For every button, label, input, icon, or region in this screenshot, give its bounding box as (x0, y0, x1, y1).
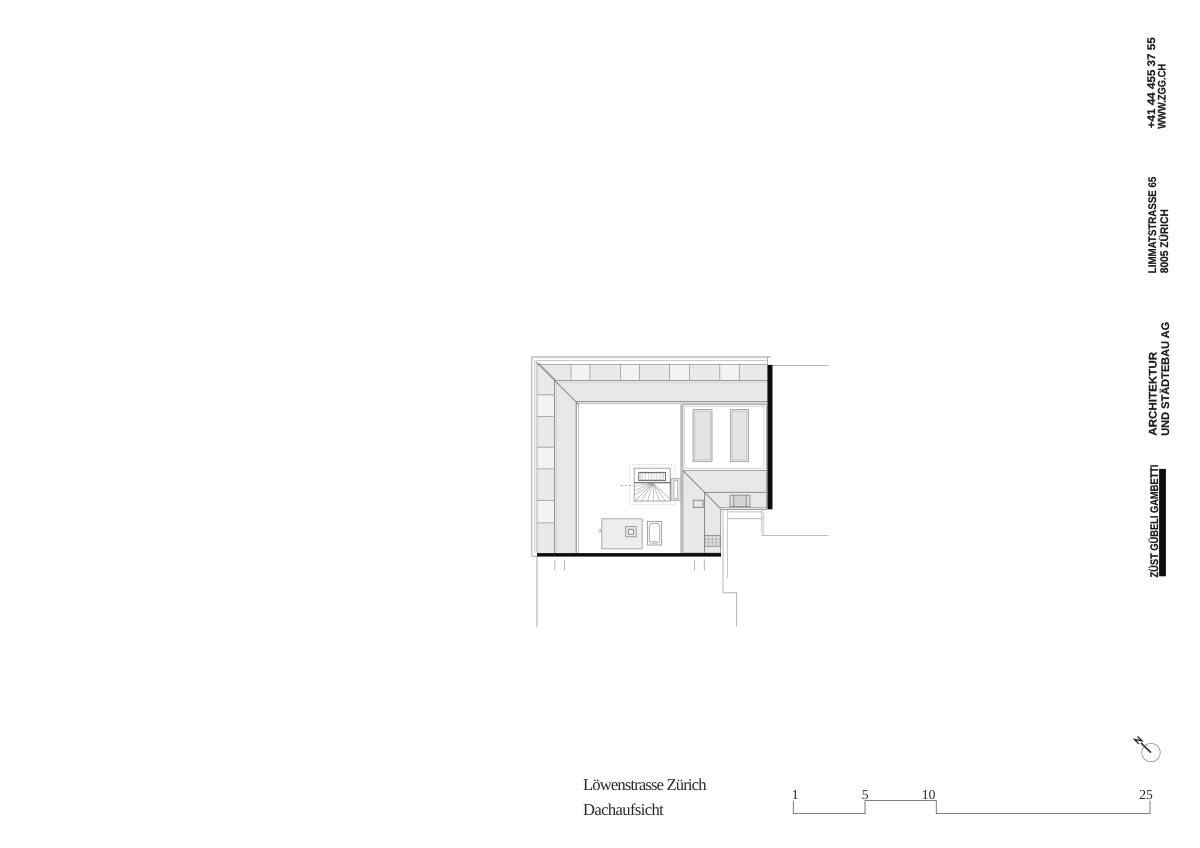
svg-text:ZÜST GÜBELI GAMBETTI: ZÜST GÜBELI GAMBETTI (1148, 465, 1161, 578)
svg-text:WWW.ZGG.CH: WWW.ZGG.CH (1157, 64, 1169, 129)
svg-text:Dachaufsicht: Dachaufsicht (583, 800, 664, 819)
svg-text:10: 10 (922, 787, 936, 802)
svg-text:8005 ZÜRICH: 8005 ZÜRICH (1158, 209, 1171, 273)
svg-text:UND STÄDTEBAU AG: UND STÄDTEBAU AG (1159, 322, 1172, 436)
svg-text:25: 25 (1139, 787, 1153, 802)
svg-text:1: 1 (792, 787, 799, 802)
svg-text:Löwenstrasse Zürich: Löwenstrasse Zürich (583, 775, 707, 794)
svg-text:LIMMATSTRASSE 65: LIMMATSTRASSE 65 (1147, 177, 1159, 274)
svg-text:ARCHITEKTUR: ARCHITEKTUR (1148, 352, 1160, 436)
svg-text:5: 5 (862, 787, 869, 802)
